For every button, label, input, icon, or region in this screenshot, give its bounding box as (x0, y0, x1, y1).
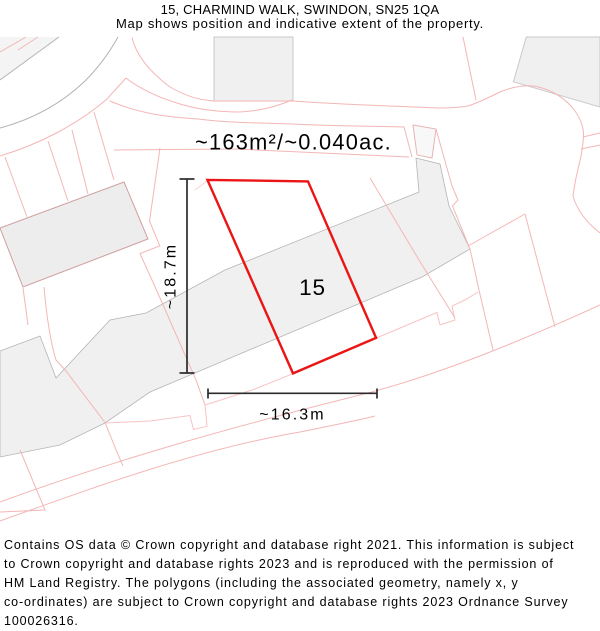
svg-text:~18.7m: ~18.7m (163, 243, 180, 309)
svg-text:15: 15 (299, 275, 326, 300)
svg-text:~163m²/~0.040ac.: ~163m²/~0.040ac. (195, 129, 392, 154)
svg-text:~16.3m: ~16.3m (259, 406, 325, 423)
